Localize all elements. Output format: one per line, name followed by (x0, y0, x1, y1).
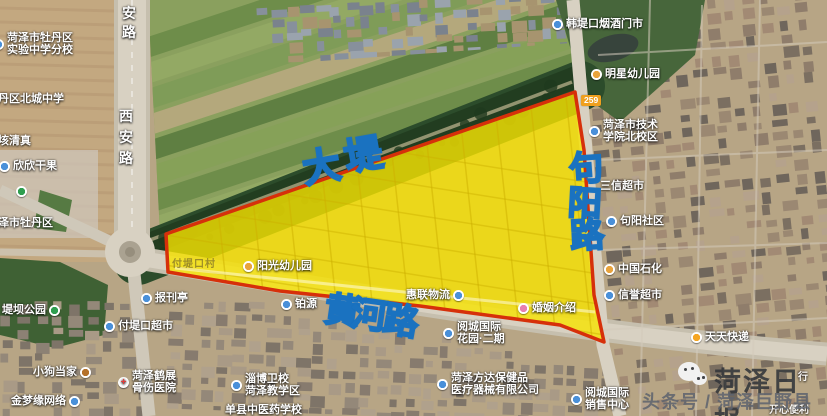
poi-label-line: 韩堤口烟酒门市 (566, 19, 643, 31)
poi-tiantian-express: 天天快递 (691, 332, 749, 344)
poi-shanxian-tcm-school: 单县中医药学校 (225, 405, 302, 416)
dot-icon (69, 396, 80, 407)
poi-yuecheng-sales-center: 阅城国际销售中心 (571, 388, 629, 411)
poi-jinmengyuan-network: 金梦缘网络 (11, 396, 80, 408)
poi-hezhan-hospital: +菏泽鹤展骨伤医院 (118, 371, 176, 394)
dot-icon (141, 293, 152, 304)
poi-label-text: 单县中医药学校 (225, 405, 302, 416)
dot-icon (604, 264, 615, 275)
poi-label-text: 信誉超市 (618, 290, 662, 302)
poi-label-line: 丹区北城中学 (0, 94, 64, 106)
poi-label-line: 菏泽教学区 (245, 386, 300, 398)
poi-label-line: 实验中学分校 (7, 45, 73, 57)
poi-label-text: 小狗当家 (33, 367, 77, 379)
poi-label-line: 单县中医药学校 (225, 405, 302, 416)
poi-label-line: 医疗器械有限公司 (451, 385, 539, 397)
poi-label-line: 垓清真 (0, 136, 31, 148)
poi-label-line: 菏泽方达保健品 (451, 373, 539, 385)
map-label-layer: 菏泽市牡丹区实验中学分校丹区北城中学垓清真欣欣干果泽市牡丹区堤坝公园报刊亭付堤口… (0, 0, 827, 416)
poi-label-text: 阳光幼儿园 (257, 261, 312, 273)
poi-label-text: 丹区北城中学 (0, 94, 64, 106)
poi-qingzhen: 垓清真 (0, 136, 31, 148)
tree-icon (16, 186, 27, 197)
poi-label-text: 中国石化 (618, 264, 662, 276)
poi-label-text: 明星幼儿园 (605, 69, 660, 81)
poi-label-text: 菏泽方达保健品医疗器械有限公司 (451, 373, 539, 396)
dot-icon (0, 161, 10, 172)
building-icon (443, 328, 454, 339)
poi-label-line: 菏泽鹤展 (132, 371, 176, 383)
dot-icon (552, 19, 563, 30)
poi-label-line: 中国石化 (618, 264, 662, 276)
route-259-badge: 259 (581, 95, 601, 106)
poi-label-text: 堤坝公园 (2, 305, 46, 317)
road-label-xian-road-top: 路 (122, 22, 136, 42)
poi-label-text: 泽市牡丹区 (0, 218, 53, 230)
poi-label-line: 泽市牡丹区 (0, 218, 53, 230)
poi-label-line: 学院北校区 (603, 132, 658, 144)
poi-shiyan-school-branch: 菏泽市牡丹区实验中学分校 (0, 33, 73, 56)
poi-label-text: 菏泽市牡丹区实验中学分校 (7, 33, 73, 56)
poi-label-line: 三信超市 (600, 181, 644, 193)
poi-futidikou-village: 付堤口村 (172, 259, 216, 271)
poi-zeshi-mudanqu: 泽市牡丹区 (0, 218, 53, 230)
poi-label-text: 阅城国际花园·二期 (457, 322, 505, 345)
poi-label-text: 铂源 (295, 299, 317, 311)
poi-label-text: 淄博卫校菏泽教学区 (245, 374, 300, 397)
poi-label-line: 天天快递 (705, 332, 749, 344)
poi-label-line: 阳光幼儿园 (257, 261, 312, 273)
watermark-account: 头条号 / 菏泽巨野县法院 (642, 388, 827, 416)
poi-label-line: 铂源 (295, 299, 317, 311)
dot-icon (243, 261, 254, 272)
poi-label-line: 阅城国际 (585, 388, 629, 400)
cross-icon: + (118, 377, 129, 388)
poi-label-line: 骨伤医院 (132, 383, 176, 395)
poi-hantikou-store: 韩堤口烟酒门市 (552, 19, 643, 31)
poi-label-line: 句阳社区 (620, 216, 664, 228)
road-label-xian-road-top: 安 (122, 3, 136, 23)
poi-beicheng-middle-school: 丹区北城中学 (0, 94, 64, 106)
poi-label-line: 堤坝公园 (2, 305, 46, 317)
building-icon (606, 216, 617, 227)
poi-xinyu-supermarket: 信誉超市 (604, 290, 662, 302)
dot-icon (80, 367, 91, 378)
blue-road-label-juyang-road: 路 (569, 207, 606, 258)
building-icon (571, 394, 582, 405)
poi-juyang-community: 句阳社区 (606, 216, 664, 228)
dot-icon (604, 290, 615, 301)
poi-label-text: 金梦缘网络 (11, 396, 66, 408)
poi-sanxin-supermarket: 三信超市 (600, 181, 644, 193)
poi-label-text: 报刊亭 (155, 293, 188, 305)
poi-label-text: 三信超市 (600, 181, 644, 193)
dot-icon (453, 290, 464, 301)
poi-fangda-healthcare: 菏泽方达保健品医疗器械有限公司 (437, 373, 539, 396)
poi-label-text: 菏泽鹤展骨伤医院 (132, 371, 176, 394)
poi-yangguang-kindergarten: 阳光幼儿园 (243, 261, 312, 273)
tree-icon (49, 305, 60, 316)
dot-icon (281, 299, 292, 310)
poi-diba-park: 堤坝公园 (2, 305, 60, 317)
poi-label-line: 销售中心 (585, 400, 629, 412)
blue-road-label-dadi-levee: 大 (298, 133, 345, 194)
poi-park-marker (16, 186, 30, 197)
poi-xiaogou-dangjia: 小狗当家 (33, 367, 91, 379)
satellite-map-image: 菏泽市牡丹区实验中学分校丹区北城中学垓清真欣欣干果泽市牡丹区堤坝公园报刊亭付堤口… (0, 0, 827, 416)
dot-icon (589, 126, 600, 137)
poi-mingxing-kindergarten: 明星幼儿园 (591, 69, 660, 81)
poi-label-line: 小狗当家 (33, 367, 77, 379)
road-label-xian-road: 路 (119, 148, 133, 168)
poi-label-text: 韩堤口烟酒门市 (566, 19, 643, 31)
poi-label-line: 阅城国际 (457, 322, 505, 334)
poi-label-line: 花园·二期 (457, 334, 505, 346)
dot-icon (231, 380, 242, 391)
poi-label-text: 欣欣干果 (13, 161, 57, 173)
poi-baokanting: 报刊亭 (141, 293, 188, 305)
poi-label-line: 淄博卫校 (245, 374, 300, 386)
poi-label-text: 付堤口村 (172, 259, 216, 271)
poi-label-line: 菏泽市技术 (603, 120, 658, 132)
poi-label-text: 菏泽市技术学院北校区 (603, 120, 658, 143)
poi-label-text: 句阳社区 (620, 216, 664, 228)
poi-label-line: 报刊亭 (155, 293, 188, 305)
poi-label-line: 菏泽市牡丹区 (7, 33, 73, 45)
dot-icon (591, 69, 602, 80)
poi-label-text: 阅城国际销售中心 (585, 388, 629, 411)
poi-label-line: 付堤口超市 (118, 321, 173, 333)
road-label-xian-road: 安 (119, 127, 133, 147)
blue-road-label-dadi-levee: 堤 (340, 121, 387, 182)
poi-label-line: 付堤口村 (172, 259, 216, 271)
poi-futidikou-supermarket: 付堤口超市 (104, 321, 173, 333)
poi-label-text: 垓清真 (0, 136, 31, 148)
dot-icon (104, 321, 115, 332)
poi-label-line: 金梦缘网络 (11, 396, 66, 408)
poi-zibo-weixiao: 淄博卫校菏泽教学区 (231, 374, 300, 397)
poi-label-text: 婚姻介绍 (532, 303, 576, 315)
dot-icon (691, 332, 702, 343)
road-label-xian-road: 西 (119, 106, 133, 126)
poi-sinopec: 中国石化 (604, 264, 662, 276)
dot-icon (437, 379, 448, 390)
blue-road-label-huanghe-road: 路 (380, 290, 423, 346)
poi-yuecheng-garden-phase2: 阅城国际花园·二期 (443, 322, 505, 345)
poi-label-line: 婚姻介绍 (532, 303, 576, 315)
dot-icon (0, 39, 4, 50)
poi-xinxin-dried-fruit: 欣欣干果 (0, 161, 57, 173)
poi-boyuan: 铂源 (281, 299, 317, 311)
dot-icon (518, 303, 529, 314)
poi-label-text: 天天快递 (705, 332, 749, 344)
poi-label-line: 信誉超市 (618, 290, 662, 302)
poi-label-text: 付堤口超市 (118, 321, 173, 333)
poi-hunyin-jieshao: 婚姻介绍 (518, 303, 576, 315)
poi-label-line: 明星幼儿园 (605, 69, 660, 81)
poi-label-line: 欣欣干果 (13, 161, 57, 173)
